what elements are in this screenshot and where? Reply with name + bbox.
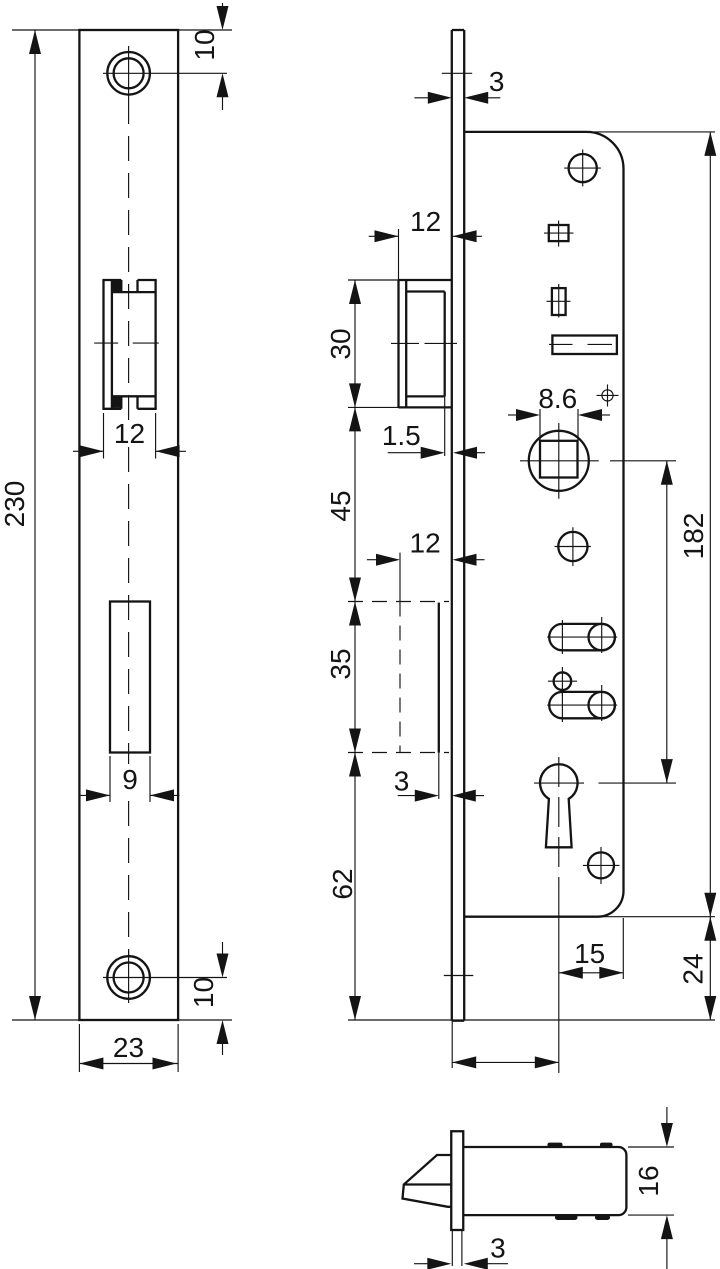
svg-text:3: 3 <box>490 1233 506 1264</box>
svg-text:10: 10 <box>188 977 219 1008</box>
svg-text:3: 3 <box>489 66 505 97</box>
svg-text:12: 12 <box>410 206 441 237</box>
svg-text:8.6: 8.6 <box>538 383 577 414</box>
svg-text:45: 45 <box>325 490 356 521</box>
svg-text:1.5: 1.5 <box>382 420 421 451</box>
svg-text:10: 10 <box>189 29 220 60</box>
svg-text:12: 12 <box>410 528 441 559</box>
svg-text:9: 9 <box>122 764 138 795</box>
svg-text:35: 35 <box>325 648 356 679</box>
svg-text:16: 16 <box>633 1165 664 1196</box>
svg-text:24: 24 <box>678 953 709 984</box>
svg-text:3: 3 <box>394 766 410 797</box>
svg-text:15: 15 <box>574 938 605 969</box>
svg-text:23: 23 <box>113 1032 144 1063</box>
svg-text:30: 30 <box>325 328 356 359</box>
svg-text:62: 62 <box>327 868 358 899</box>
svg-text:12: 12 <box>114 418 145 449</box>
svg-text:230: 230 <box>0 481 30 528</box>
svg-text:182: 182 <box>678 513 709 560</box>
